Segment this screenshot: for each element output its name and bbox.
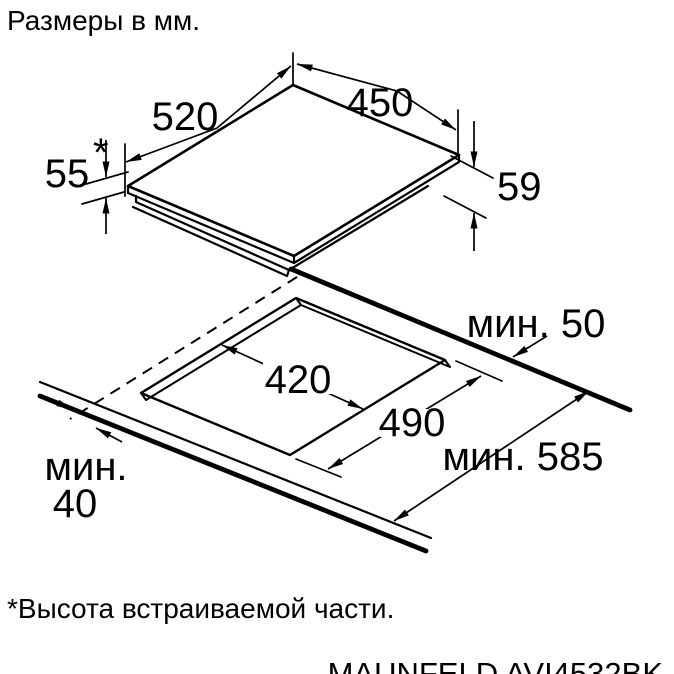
dim-label-width-450: 450: [347, 81, 414, 125]
dim-label-min-front-40: 40: [53, 482, 98, 526]
arrow-min-40-right: [96, 428, 122, 442]
hob-glass-edge: [128, 155, 459, 263]
footnote: *Высота встраиваемой части.: [7, 593, 394, 624]
model-name: MAUNFELD AVI4532BK: [328, 656, 664, 674]
asterisk-marker: *: [93, 131, 109, 175]
ext-line-490-low: [296, 459, 341, 477]
arrow-min-40-left: [46, 398, 72, 409]
installation-drawing-page: Размеры в мм. 520 450 55 * 59 мин. 50 42…: [0, 0, 674, 674]
dim-label-total-height-59: 59: [497, 165, 542, 209]
dim-label-depth-520: 520: [152, 95, 219, 139]
ext-line-59-top: [451, 156, 493, 178]
drawing-title: Размеры в мм.: [7, 5, 200, 36]
dim-label-cutout-depth-490: 490: [379, 401, 446, 445]
dimension-diagram: Размеры в мм. 520 450 55 * 59 мин. 50 42…: [0, 0, 674, 674]
dim-label-min-counter-depth-585: мин. 585: [443, 435, 604, 479]
dim-label-min-rear-50: мин. 50: [467, 302, 606, 346]
hob-built-in-box: [133, 186, 428, 276]
hob-overhang-dashed-line: [70, 277, 297, 419]
hob-dimensions: [82, 53, 493, 251]
dim-label-cutout-width-420: 420: [265, 358, 332, 402]
dim-label-built-in-height-55: 55: [45, 152, 90, 196]
ext-line-59-bottom: [444, 196, 486, 218]
